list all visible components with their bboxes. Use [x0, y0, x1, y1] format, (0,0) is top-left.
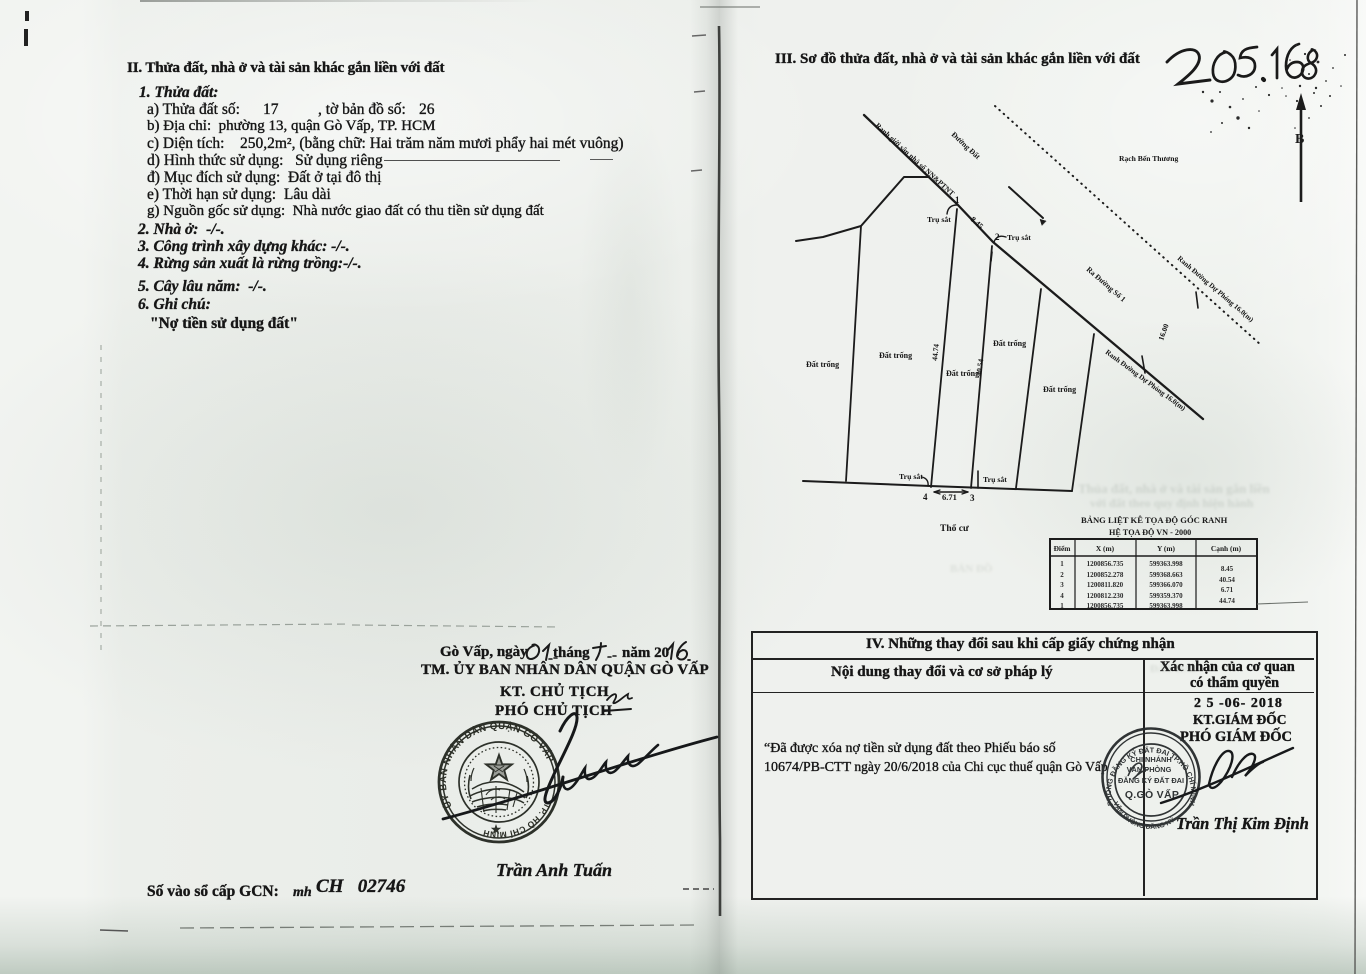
svg-text:599363.998: 599363.998: [1149, 560, 1183, 568]
svg-text:44.74: 44.74: [1219, 597, 1235, 605]
svg-text:40.54: 40.54: [1219, 576, 1235, 584]
svg-text:8.45: 8.45: [1221, 565, 1234, 573]
svg-text:Đất trống: Đất trống: [1043, 385, 1076, 394]
svg-text:Đất trống: Đất trống: [806, 360, 839, 369]
svg-text:Ranh giới sân nhà số NN&PTNT: Ranh giới sân nhà số NN&PTNT: [874, 121, 957, 198]
svg-text:1200852.278: 1200852.278: [1087, 571, 1124, 579]
svg-text:3: 3: [970, 493, 975, 503]
svg-text:Trụ sắt: Trụ sắt: [1007, 233, 1031, 242]
svg-text:Ra Đường Số 1: Ra Đường Số 1: [1085, 265, 1128, 304]
svg-text:6.71: 6.71: [942, 492, 957, 502]
svg-text:Rạch Bến Thương: Rạch Bến Thương: [1119, 154, 1178, 163]
svg-text:Thổ cư: Thổ cư: [940, 523, 969, 534]
svg-text:4: 4: [1060, 592, 1064, 600]
svg-text:4: 4: [923, 492, 928, 502]
svg-text:ĐĂNG KÝ ĐẤT ĐAI: ĐĂNG KÝ ĐẤT ĐAI: [1118, 775, 1184, 785]
svg-text:B: B: [1295, 132, 1304, 147]
svg-text:X (m): X (m): [1096, 544, 1115, 553]
svg-text:ĐẤT ĐAI: ĐẤT ĐAI: [1150, 662, 1196, 675]
svg-text:Trụ sắt: Trụ sắt: [983, 475, 1007, 484]
svg-text:HỆ TỌA ĐỘ VN - 2000: HỆ TỌA ĐỘ VN - 2000: [1109, 528, 1191, 537]
svg-text:Y (m): Y (m): [1157, 544, 1176, 553]
svg-text:1: 1: [1060, 602, 1064, 610]
svg-text:với đất theo quy định hiện hàn: với đất theo quy định hiện hành: [1090, 496, 1254, 510]
svg-text:Điểm: Điểm: [1054, 544, 1072, 553]
svg-text:Ranh Đường Dự Phóng 16.0(m): Ranh Đường Dự Phóng 16.0(m): [1104, 348, 1188, 413]
svg-text:599368.663: 599368.663: [1149, 571, 1183, 579]
svg-text:Đất trống: Đất trống: [946, 369, 979, 378]
svg-text:BẢN ĐỒ: BẢN ĐỒ: [950, 562, 993, 575]
svg-text:Ranh Đường Dự Phóng 16.0(m): Ranh Đường Dự Phóng 16.0(m): [1176, 254, 1256, 324]
svg-text:Trụ sắt: Trụ sắt: [899, 472, 923, 481]
svg-text:44.74: 44.74: [930, 343, 941, 361]
svg-text:1200812.230: 1200812.230: [1087, 592, 1124, 600]
svg-text:599359.370: 599359.370: [1149, 592, 1183, 600]
svg-text:599363.998: 599363.998: [1149, 602, 1183, 610]
svg-text:8.45: 8.45: [969, 215, 985, 231]
svg-text:1: 1: [955, 195, 960, 205]
svg-text:Đường Đất: Đường Đất: [950, 130, 983, 161]
svg-text:6.71: 6.71: [1221, 586, 1234, 594]
svg-text:BẢNG LIỆT KÊ TỌA ĐỘ GÓC RANH: BẢNG LIỆT KÊ TỌA ĐỘ GÓC RANH: [1081, 515, 1228, 525]
svg-text:1: 1: [1060, 560, 1064, 568]
svg-text:1200856.735: 1200856.735: [1087, 602, 1124, 610]
svg-text:2: 2: [995, 232, 1000, 242]
svg-text:1200856.735: 1200856.735: [1087, 560, 1124, 568]
svg-text:2: 2: [1060, 571, 1064, 579]
svg-text:Đất trống: Đất trống: [879, 351, 912, 360]
svg-text:1200811.820: 1200811.820: [1087, 581, 1124, 589]
svg-text:599366.070: 599366.070: [1149, 581, 1183, 589]
svg-text:Trụ sắt: Trụ sắt: [927, 215, 951, 224]
svg-text:Thủa đất, nhà ở và tài sản gắn: Thủa đất, nhà ở và tài sản gắn liền: [1078, 481, 1271, 496]
svg-text:3: 3: [1060, 581, 1064, 589]
svg-text:Đất trống: Đất trống: [993, 339, 1026, 348]
svg-text:16.00: 16.00: [1156, 322, 1170, 341]
svg-text:Cạnh (m): Cạnh (m): [1211, 544, 1242, 553]
